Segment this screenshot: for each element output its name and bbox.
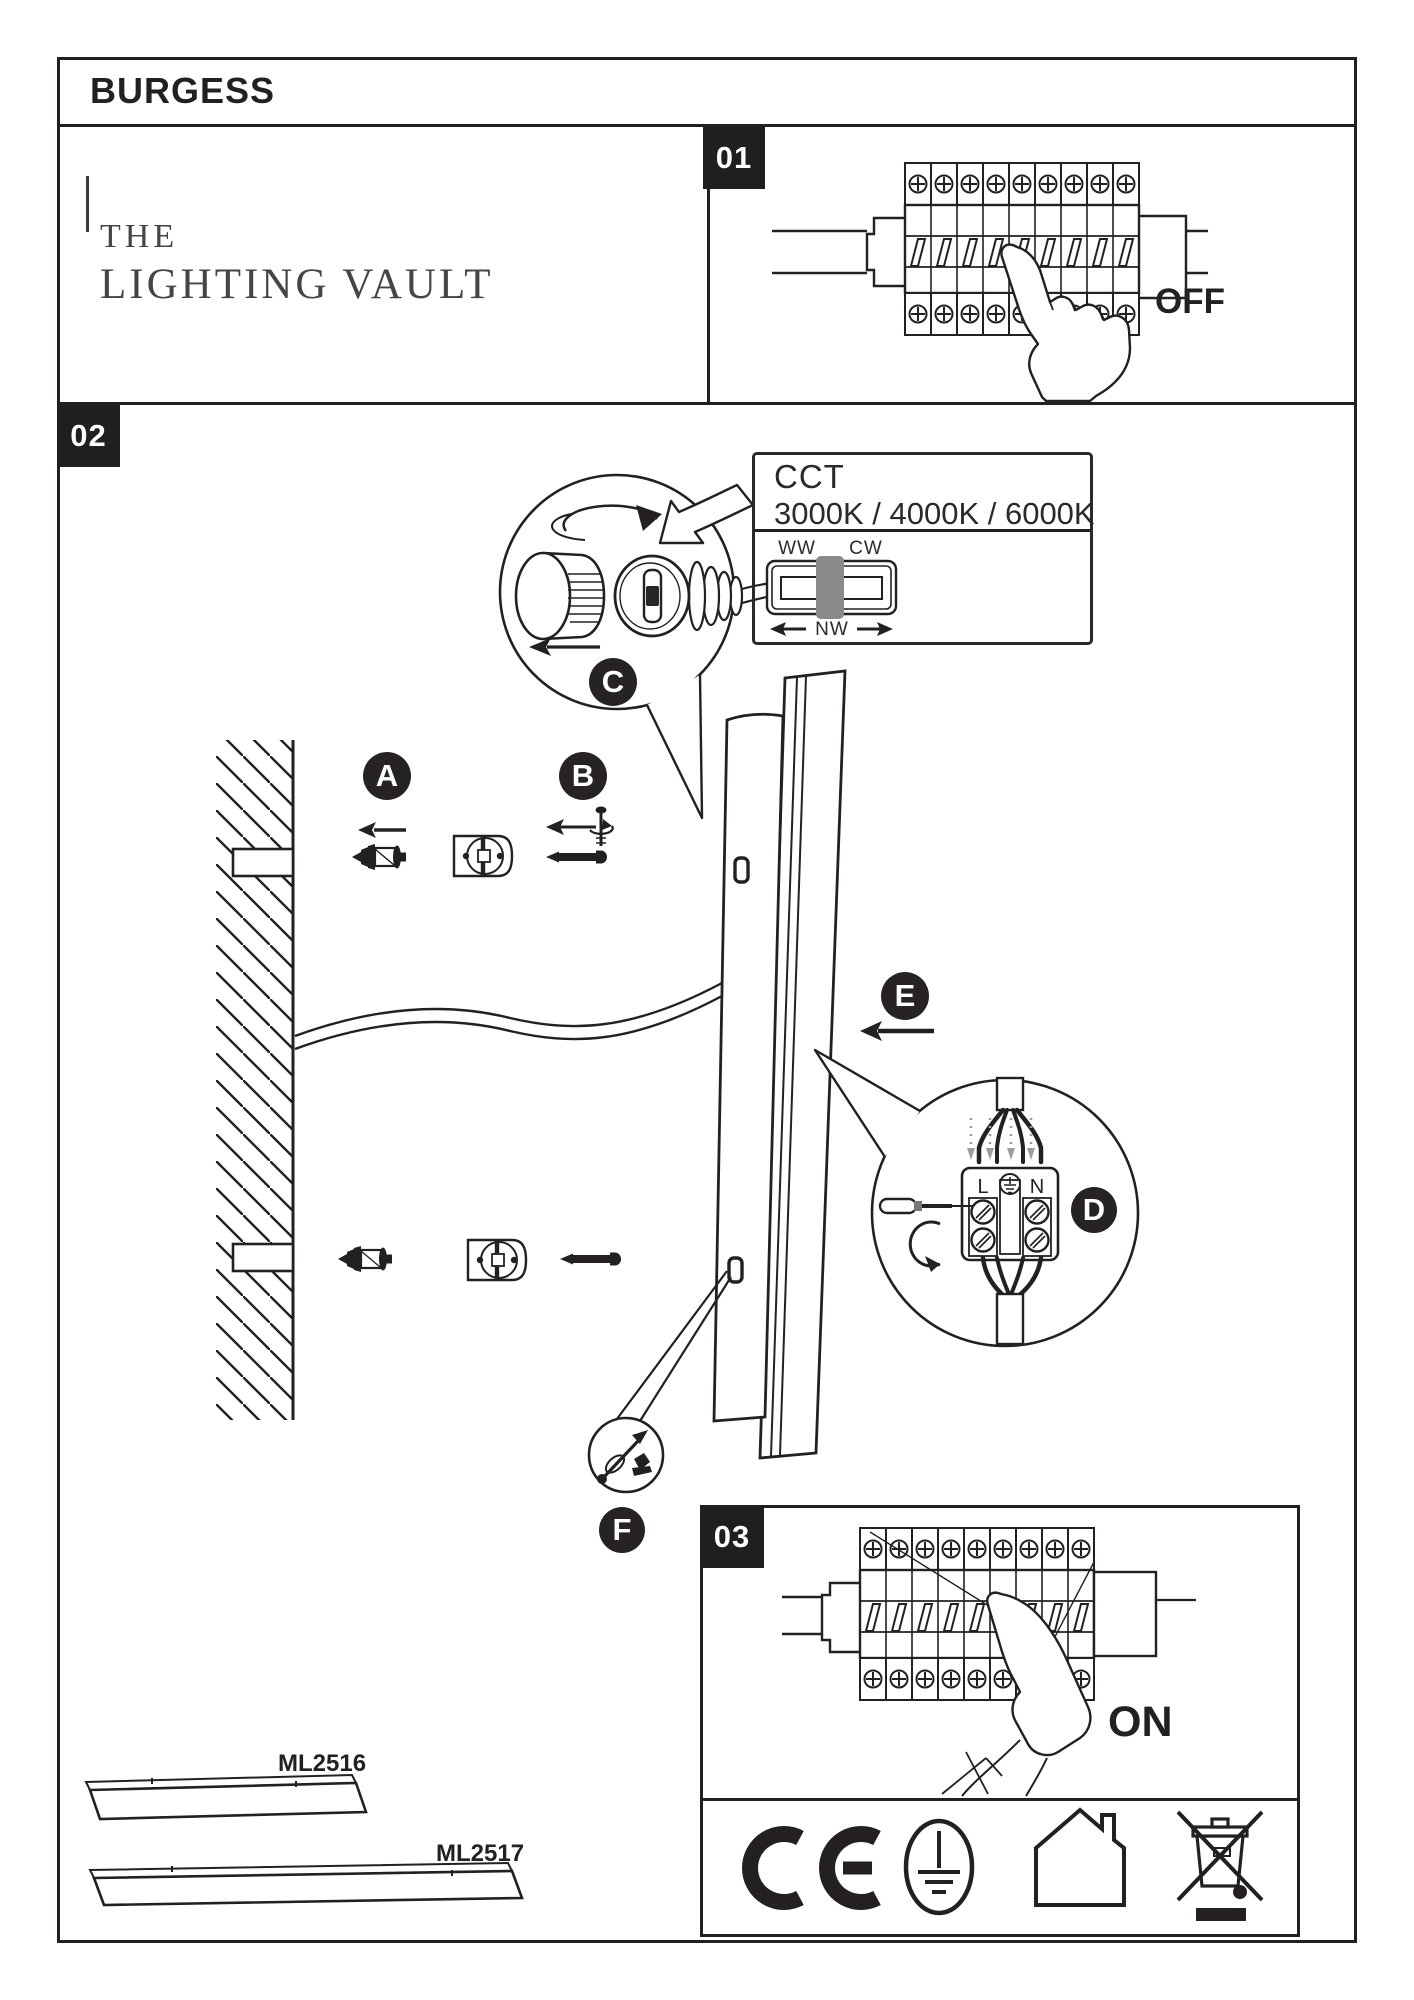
step-1-badge: 01 [703,127,765,189]
logo-line-1: THE [100,218,178,256]
neutral-terminal-label: N [1027,1176,1047,1199]
callout-a-badge: A [363,752,411,800]
product-code-long: ML2517 [436,1840,524,1868]
product-code-short: ML2516 [278,1750,366,1778]
certification-divider [700,1798,1300,1801]
live-terminal-label: L [973,1176,993,1199]
step-3-badge: 03 [700,1505,764,1568]
step3-panel-border [700,1505,1300,1937]
callout-b-badge: B [559,752,607,800]
step-2-badge: 02 [57,405,120,467]
breaker-off-label: OFF [1155,282,1225,322]
warm-white-label: WW [775,538,819,560]
cct-title: CCT [774,458,845,496]
callout-c-badge: C [589,658,637,706]
callout-d-badge: D [1071,1187,1117,1233]
neutral-white-label: NW [810,619,854,641]
manual-page: BURGESS THE LIGHTING VAULT 01 OFF 02 CCT… [0,0,1414,2000]
step2-top-border [57,402,1357,405]
cct-options: 3000K / 4000K / 6000K [774,496,1095,532]
cct-box-divider [754,529,1091,532]
brand-logo: BURGESS [90,70,275,112]
cool-white-label: CW [844,538,888,560]
logo-line-2: LIGHTING VAULT [100,260,494,309]
logo-accent-bar [86,176,89,232]
callout-e-badge: E [881,972,929,1020]
breaker-on-label: ON [1108,1698,1173,1747]
callout-f-badge: F [599,1507,645,1553]
